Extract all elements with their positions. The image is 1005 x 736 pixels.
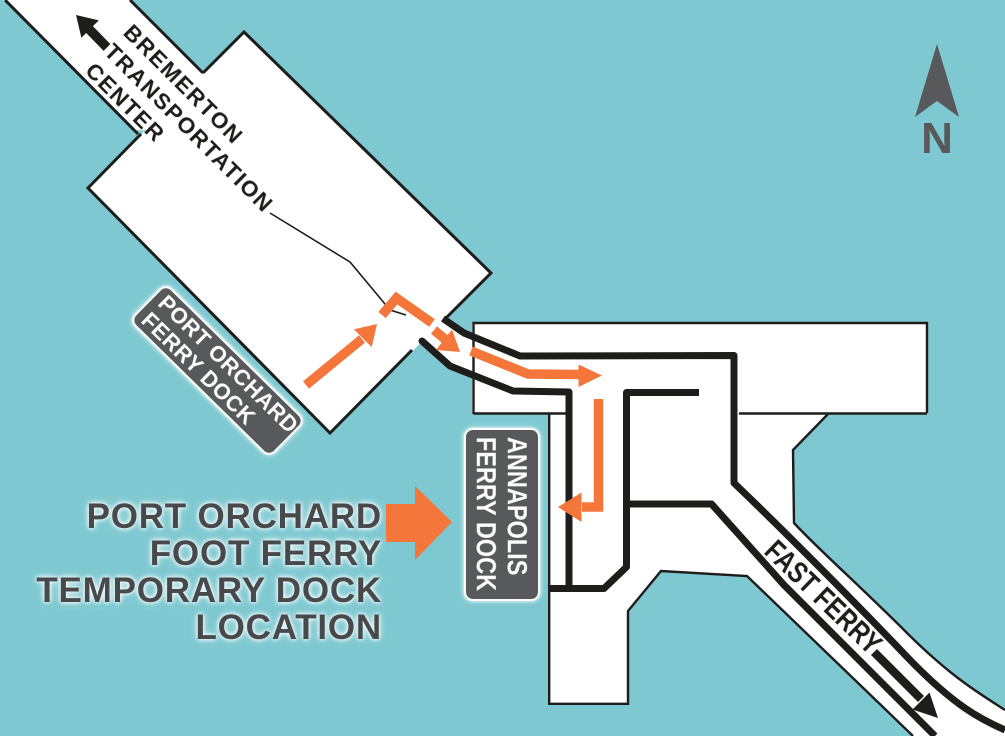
svg-text:N: N <box>921 114 953 163</box>
